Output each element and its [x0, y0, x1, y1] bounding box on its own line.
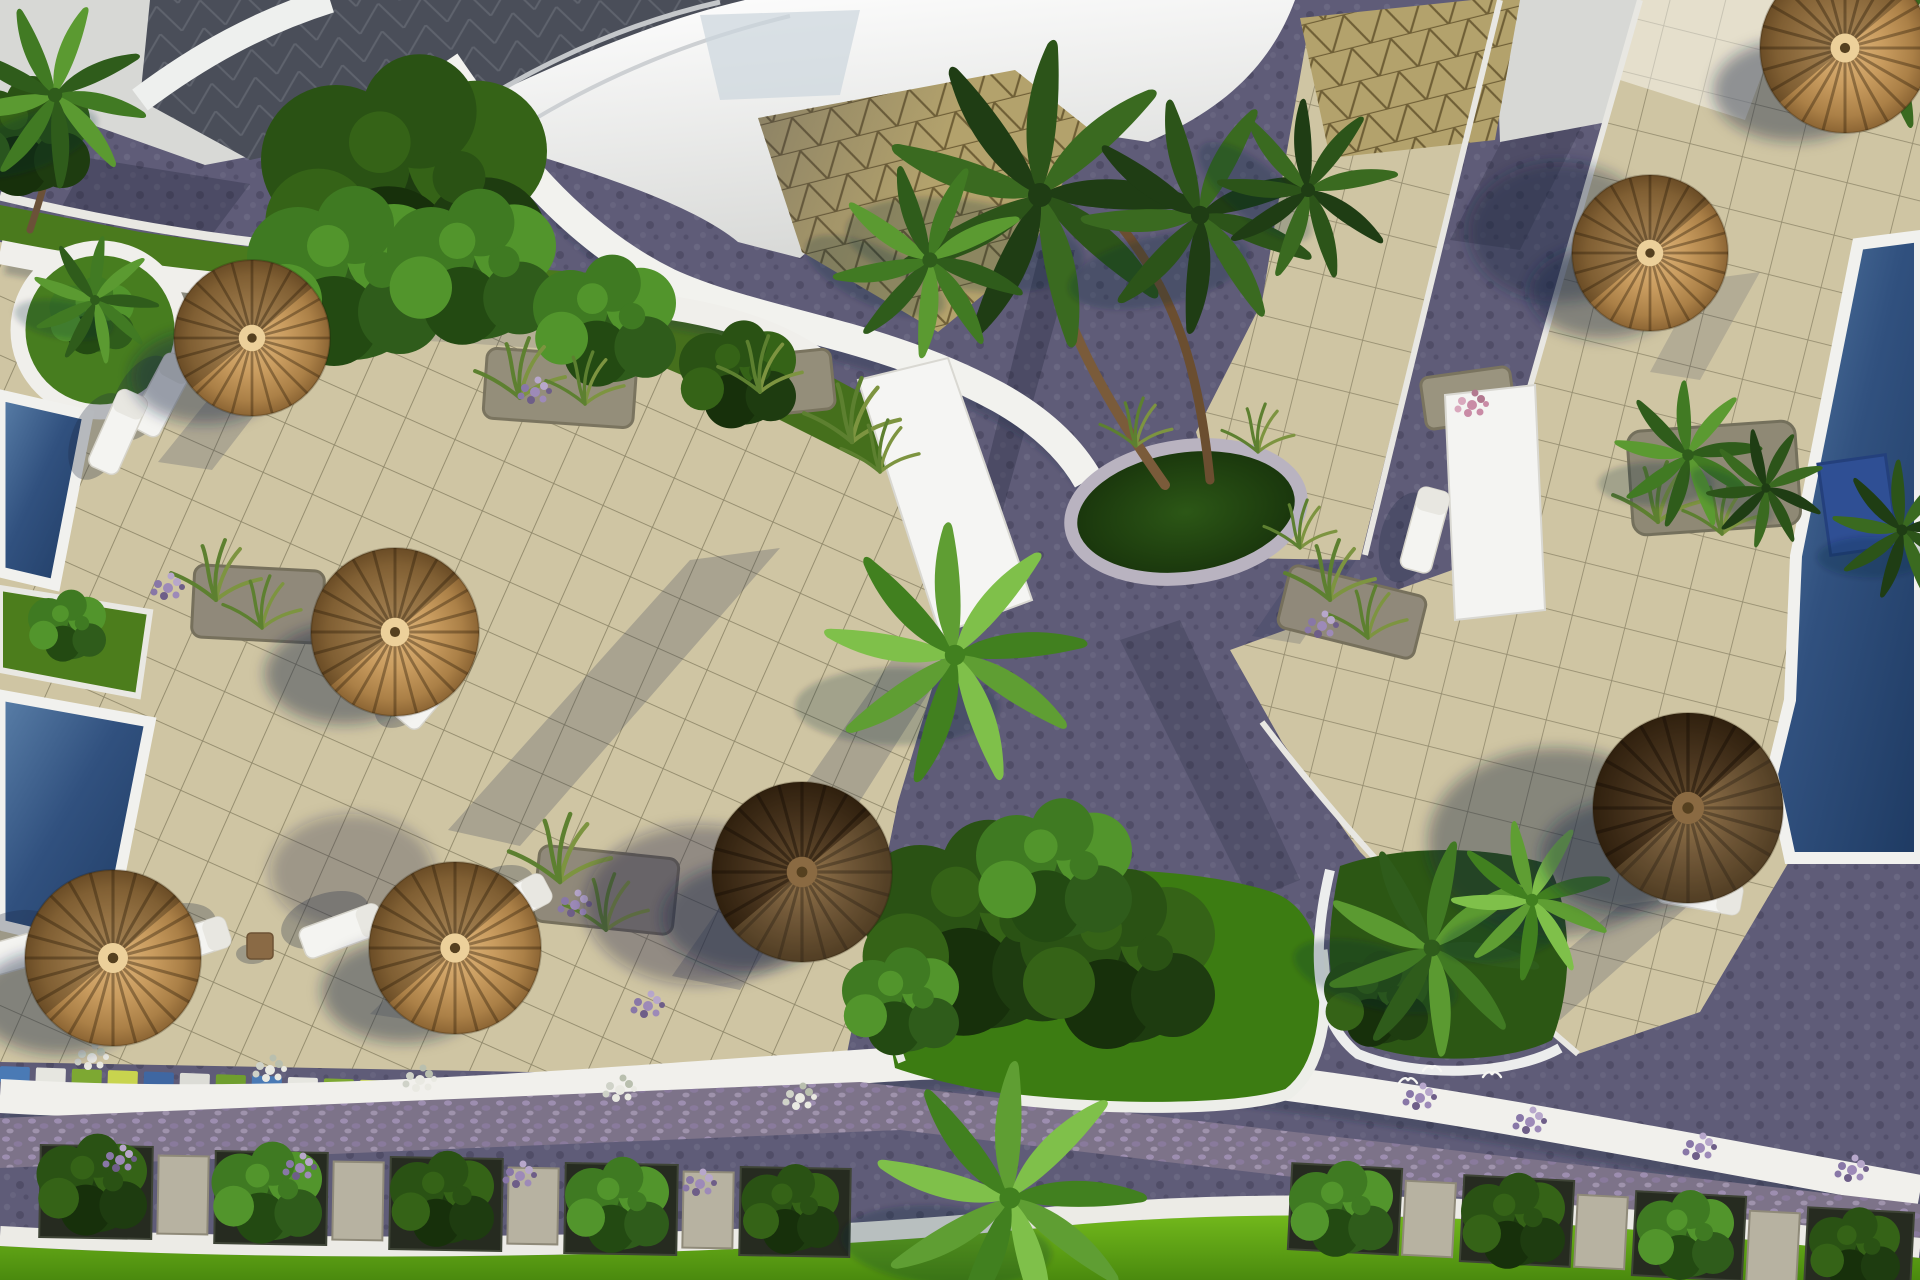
scene-canvas: Aerial 3D rendering of a resort pool dec… [0, 0, 1920, 1280]
stone-divider [1574, 1195, 1628, 1270]
white-slab-right [1445, 385, 1545, 620]
stone-divider [507, 1168, 558, 1245]
resort-aerial-render: Aerial 3D rendering of a resort pool dec… [0, 0, 1920, 1280]
triangle-pavement-pattern [1300, 0, 1520, 158]
stone-divider [157, 1156, 208, 1235]
stone-divider [1746, 1211, 1800, 1280]
stone-divider [1402, 1181, 1456, 1258]
roof-glass-tint [700, 10, 860, 100]
stone-divider [332, 1162, 383, 1241]
